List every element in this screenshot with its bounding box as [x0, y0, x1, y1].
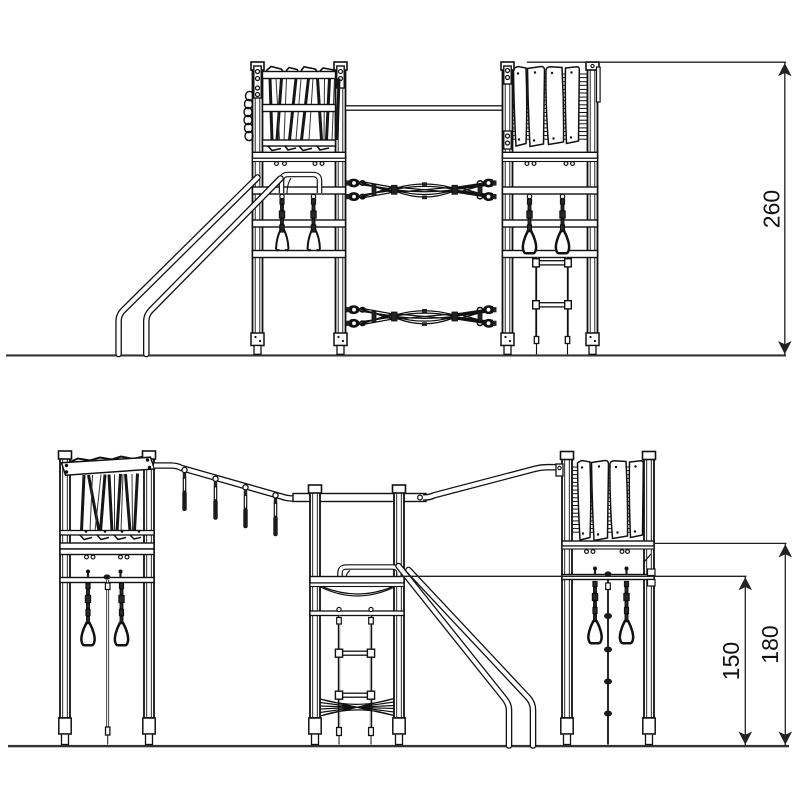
svg-text:180: 180 — [757, 625, 783, 663]
svg-text:150: 150 — [718, 642, 744, 680]
svg-text:260: 260 — [758, 190, 784, 228]
